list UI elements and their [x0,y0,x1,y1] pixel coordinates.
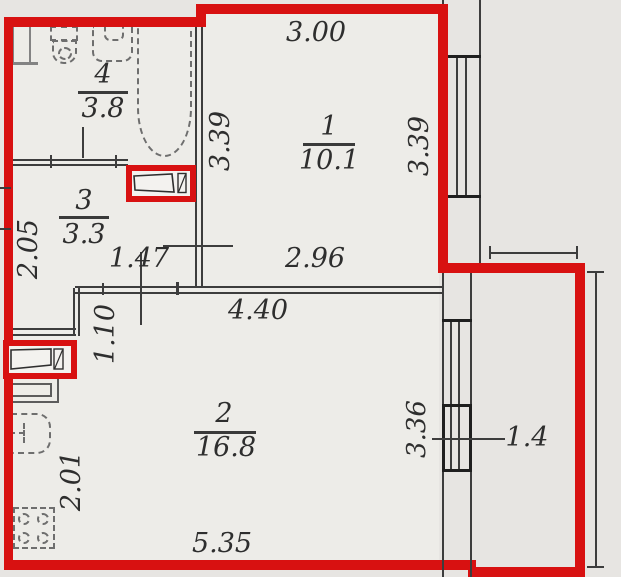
balcony-top-dim-line [490,252,577,254]
closet-south-wall-line [8,334,76,336]
bath-wall-tick [50,155,52,168]
room2-wall-tick [176,282,179,295]
closet-east-wall-line [78,288,80,336]
bathroom-door [126,165,196,202]
balcony-area: 1.4 [504,423,550,453]
right-dim-top-tick [587,271,604,273]
balcony-top-dim-tick [489,246,491,259]
room4-label-leader-line [82,127,84,158]
stove-burner [18,513,30,525]
outer-wall-top-right [196,4,448,14]
bathroom-south-wall-line [8,164,128,166]
stove-burner [37,513,49,525]
dim-room2-top-width: 4.40 [222,296,294,326]
left-wall-tick [0,228,11,230]
room4-area: 3.8 [75,94,131,124]
dim-entry-width: 1.10 [91,298,121,370]
closet-south-wall-line [8,328,76,330]
right-dim-line [595,272,597,568]
room1-window-glass-line [465,58,467,195]
outer-wall-left [4,17,13,570]
balcony-window-glass-line [458,322,460,407]
entry-door [3,340,77,379]
room1-window-top-cap [448,55,481,58]
balcony-window-top-cap [442,319,472,322]
toilet-tank [50,26,78,41]
room4-number: 4 [77,60,129,90]
dim-room1-left-height: 3.39 [206,105,236,177]
bathtub [137,23,192,157]
outer-wall-right-room1 [438,4,448,273]
room3-number: 3 [58,186,110,216]
balcony-top-dim-tick [576,246,578,259]
room1-window-glass-line [456,58,458,195]
bath-wall-tick [115,155,117,168]
ventilation-shaft [12,25,31,64]
left-wall-tick [0,187,11,189]
dim-balcony-window-height: 3.36 [402,393,432,465]
dim-room1-right-height: 3.39 [405,110,435,182]
room2-area: 16.8 [193,433,259,463]
room1-area: 10.1 [299,146,359,176]
balcony-window-mid-cap [442,404,472,407]
stove-burner [18,532,30,544]
outer-wall-top-left [4,17,205,27]
room2-number: 2 [196,399,252,429]
balcony-wall-top [438,263,585,273]
dim-room1-bottom-width: 2.96 [280,244,350,274]
dim-room2-bottom-width: 5.35 [186,529,258,559]
ventilation-shaft-base-line [12,62,38,65]
entry-door-leaf [9,346,70,372]
room2-wall-tick [102,283,104,295]
balcony-window-bottom-cap [442,469,472,472]
room2-north-wall-line [75,286,443,288]
facade-outer-line [479,0,481,265]
outer-wall-top-step [196,4,206,27]
bathroom-door-leaf [132,171,189,195]
stove-burner [37,532,49,544]
central-vertical-wall-line [195,18,197,288]
balcony-wall-bottom [468,567,585,577]
dim-left-lower-height: 2.01 [57,445,87,517]
room1-number: 1 [303,112,355,142]
floor-plan: 3.00 3.39 3.39 1 10.1 2.96 1.47 4.40 1.1… [0,0,621,577]
toilet-bowl-inner [58,47,72,60]
dim-left-upper-height: 2.05 [14,213,44,285]
room1-window-bottom-cap [448,195,481,198]
dim-top-width: 3.00 [280,18,352,48]
room3-area: 3.3 [56,220,112,250]
balcony-area-leader-line [432,438,505,440]
room2-north-wall-line [75,292,443,294]
dim-hall-width: 1.47 [103,244,175,274]
central-vertical-wall-line [201,18,203,288]
balcony-window-glass-line [450,322,452,407]
outer-wall-bottom [4,560,476,570]
balcony-wall-right [575,263,585,577]
right-dim-bottom-tick [587,566,604,568]
entry-shelf-inner [8,383,52,397]
bathroom-south-wall-line [8,159,128,161]
